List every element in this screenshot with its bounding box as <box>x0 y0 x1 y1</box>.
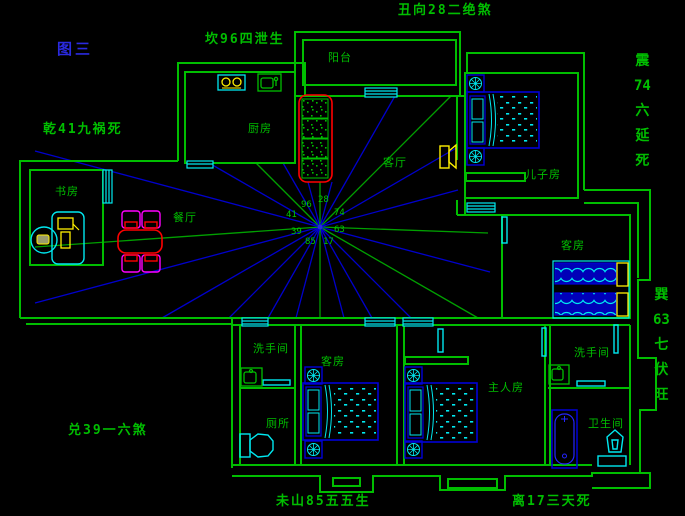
room-label-toilet: 厕所 <box>266 418 290 429</box>
annotation-south-right: 离17三天死 <box>512 495 592 508</box>
compass-center-point <box>318 225 323 230</box>
window-balcony <box>365 88 397 97</box>
floorplan-canvas: 图三 丑向28二绝煞 坎96四泄生 乾41九祸死 兑39一六煞 未山85五五生 … <box>0 0 685 516</box>
window-kitchen <box>187 161 213 168</box>
shelf-master-room <box>405 357 468 364</box>
door-washroom-east <box>614 325 618 353</box>
compass-number-qian: 41 <box>286 211 297 220</box>
twin-beds-guest-east <box>553 261 629 318</box>
toilet-west <box>240 434 273 457</box>
window-south-1 <box>242 318 268 326</box>
compass-number-zhen: 74 <box>334 209 345 218</box>
bed-master-room <box>405 383 477 442</box>
room-label-guest-room-south: 客房 <box>321 356 345 367</box>
room-label-son-room: 儿子房 <box>525 169 561 180</box>
shelf-son-room <box>466 173 525 181</box>
room-label-kitchen: 厨房 <box>248 123 272 134</box>
annotation-northwest: 乾41九祸死 <box>43 123 123 136</box>
dining-chairs <box>122 211 160 272</box>
annotation-north: 坎96四泄生 <box>205 33 285 46</box>
window-study <box>103 170 112 203</box>
window-south-2 <box>365 318 395 326</box>
annotation-top: 丑向28二绝煞 <box>398 4 493 17</box>
stove <box>218 75 245 90</box>
door-bathroom <box>577 381 605 386</box>
figure-title: 图三 <box>57 42 93 57</box>
window-son-room <box>467 203 495 212</box>
room-label-bathroom: 卫生间 <box>588 418 624 429</box>
compass-number-kun: 85 <box>305 238 316 247</box>
toilet-east <box>598 430 626 466</box>
annotation-south-left: 未山85五五生 <box>276 495 371 508</box>
compass-number-dui: 39 <box>291 228 302 237</box>
door-toilet-west <box>263 380 290 385</box>
bed-son-room <box>467 92 539 148</box>
room-label-living: 客厅 <box>383 157 407 168</box>
sofa <box>299 95 332 182</box>
room-label-dining: 餐厅 <box>173 212 197 223</box>
room-label-balcony: 阳台 <box>328 52 352 63</box>
sink-east <box>549 365 569 384</box>
compass-number-gen: 28 <box>318 196 329 205</box>
sink-west <box>241 368 262 386</box>
compass-number-kan: 96 <box>301 201 312 210</box>
annotation-west: 兑39一六煞 <box>68 424 148 437</box>
room-label-guest-room-east: 客房 <box>561 240 585 251</box>
room-label-study: 书房 <box>55 186 79 197</box>
door-master-room <box>438 329 443 352</box>
annotation-southeast-vertical: 巽 63 七 伏 旺 <box>653 288 670 402</box>
kitchen-sink <box>258 74 281 91</box>
room-label-washroom-east: 洗手间 <box>574 347 610 358</box>
window-south-3 <box>403 318 433 326</box>
annotation-east-vertical: 震 74 六 延 死 <box>634 54 651 168</box>
floorplan-drawing <box>0 0 685 516</box>
compass-number-xun: 63 <box>334 226 345 235</box>
room-label-washroom-west: 洗手间 <box>253 343 289 354</box>
bathtub <box>552 410 577 468</box>
bed-guest-room-south <box>303 383 378 440</box>
study-chair <box>31 227 57 253</box>
room-label-master-room: 主人房 <box>488 382 524 393</box>
compass-number-li: 17 <box>323 238 334 247</box>
dining-table <box>118 230 162 253</box>
